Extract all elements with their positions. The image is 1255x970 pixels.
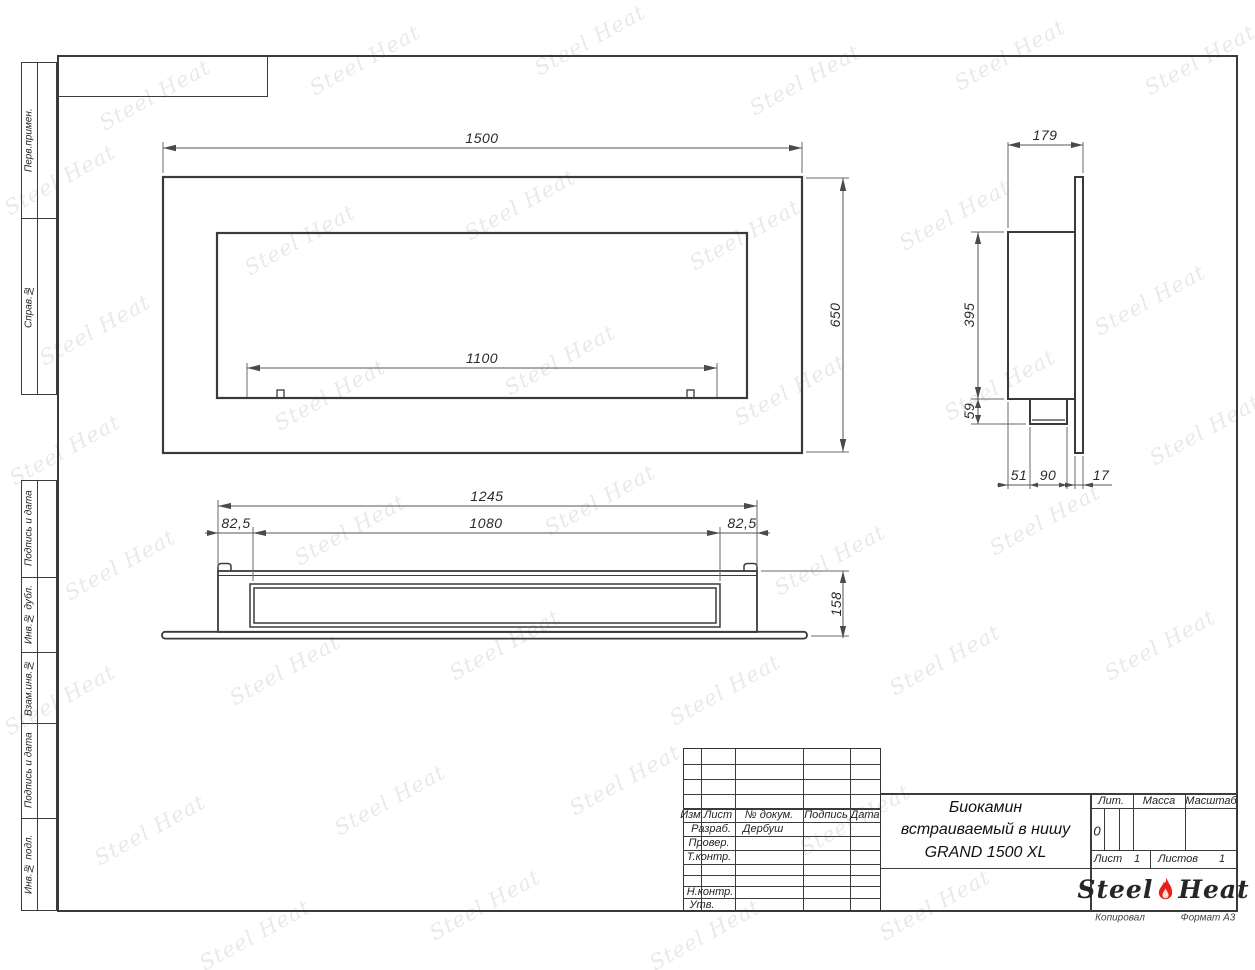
dim-side-a: 51 [1011, 467, 1028, 483]
drawing-sheet: Steel Heat Steel Heat Steel Heat Steel H… [0, 0, 1255, 970]
logo-text-heat: Heat [1178, 875, 1249, 904]
dim-bottom-body: 1245 [470, 488, 503, 504]
tb-sheet-label: Лист [1094, 853, 1122, 865]
bottom-view [162, 564, 807, 639]
logo-text-steel: Steel [1077, 875, 1153, 904]
tb-line [683, 779, 881, 780]
front-view [163, 177, 802, 453]
dimension-arrows [163, 142, 1093, 638]
tb-scale-label: Масштаб [1185, 795, 1236, 807]
tb-row-prover: Провер. [689, 837, 730, 849]
tb-line [683, 864, 881, 865]
dim-front-opening: 1100 [466, 350, 498, 366]
tb-col-list: Лист [704, 809, 732, 821]
tb-col-doc: № докум. [745, 809, 793, 821]
tb-line [1090, 808, 1237, 809]
tb-mass-label: Масса [1143, 795, 1176, 807]
tb-row-utv: Утв. [690, 899, 715, 911]
tb-col-sign: Подпись [804, 809, 848, 821]
dim-side-tray: 59 [961, 403, 977, 420]
tb-line [735, 748, 736, 911]
dim-front-width: 1500 [465, 130, 498, 146]
copied-label: Копировал [1095, 913, 1145, 924]
dim-front-height: 650 [827, 303, 843, 328]
format-label: Формат А3 [1181, 913, 1236, 924]
tb-col-date: Дата [850, 809, 879, 821]
tb-line [803, 748, 804, 911]
tb-line [683, 764, 881, 765]
tb-line [1104, 808, 1105, 850]
tb-sheets-value: 1 [1219, 853, 1225, 865]
dim-bottom-left-margin: 82,5 [221, 515, 250, 531]
dim-bottom-opening: 1080 [469, 515, 502, 531]
tb-row-nkontr: Н.контр. [687, 886, 734, 898]
tb-line [1133, 793, 1134, 850]
flame-icon [1156, 876, 1175, 903]
title-line-3: GRAND 1500 XL [925, 842, 1047, 864]
extension-lines [163, 142, 1083, 636]
tb-line [683, 875, 881, 876]
dim-side-c: 17 [1093, 467, 1110, 483]
title-line-2: встраиваемый в нишу [901, 819, 1070, 841]
tb-line [683, 794, 881, 795]
tb-lit-value: 0 [1093, 824, 1100, 839]
dim-bottom-right-margin: 82,5 [727, 515, 756, 531]
dimension-lines [163, 145, 1112, 638]
side-view [1008, 177, 1083, 453]
tb-row-tkontr: Т.контр. [687, 851, 731, 863]
tb-sheets-label: Листов [1158, 853, 1198, 865]
dim-side-depth: 179 [1033, 127, 1058, 143]
dim-side-body-height: 395 [961, 303, 977, 328]
tb-line [850, 748, 851, 911]
tb-line [1150, 850, 1151, 868]
tb-line [1090, 850, 1237, 851]
steel-heat-logo: Steel Heat [1091, 869, 1236, 910]
tb-lit-label: Лит. [1098, 795, 1124, 807]
tb-developer-name: Дербуш [743, 823, 784, 835]
document-title: Биокамин встраиваемый в нишу GRAND 1500 … [881, 794, 1090, 867]
tb-sheet-value: 1 [1134, 853, 1140, 865]
dim-bottom-depth: 158 [828, 592, 844, 617]
dim-side-b: 90 [1040, 467, 1057, 483]
tb-row-razrab: Разраб. [691, 823, 731, 835]
title-line-1: Биокамин [949, 797, 1022, 819]
tb-line [1119, 808, 1120, 850]
tb-col-izm: Изм. [680, 809, 703, 821]
